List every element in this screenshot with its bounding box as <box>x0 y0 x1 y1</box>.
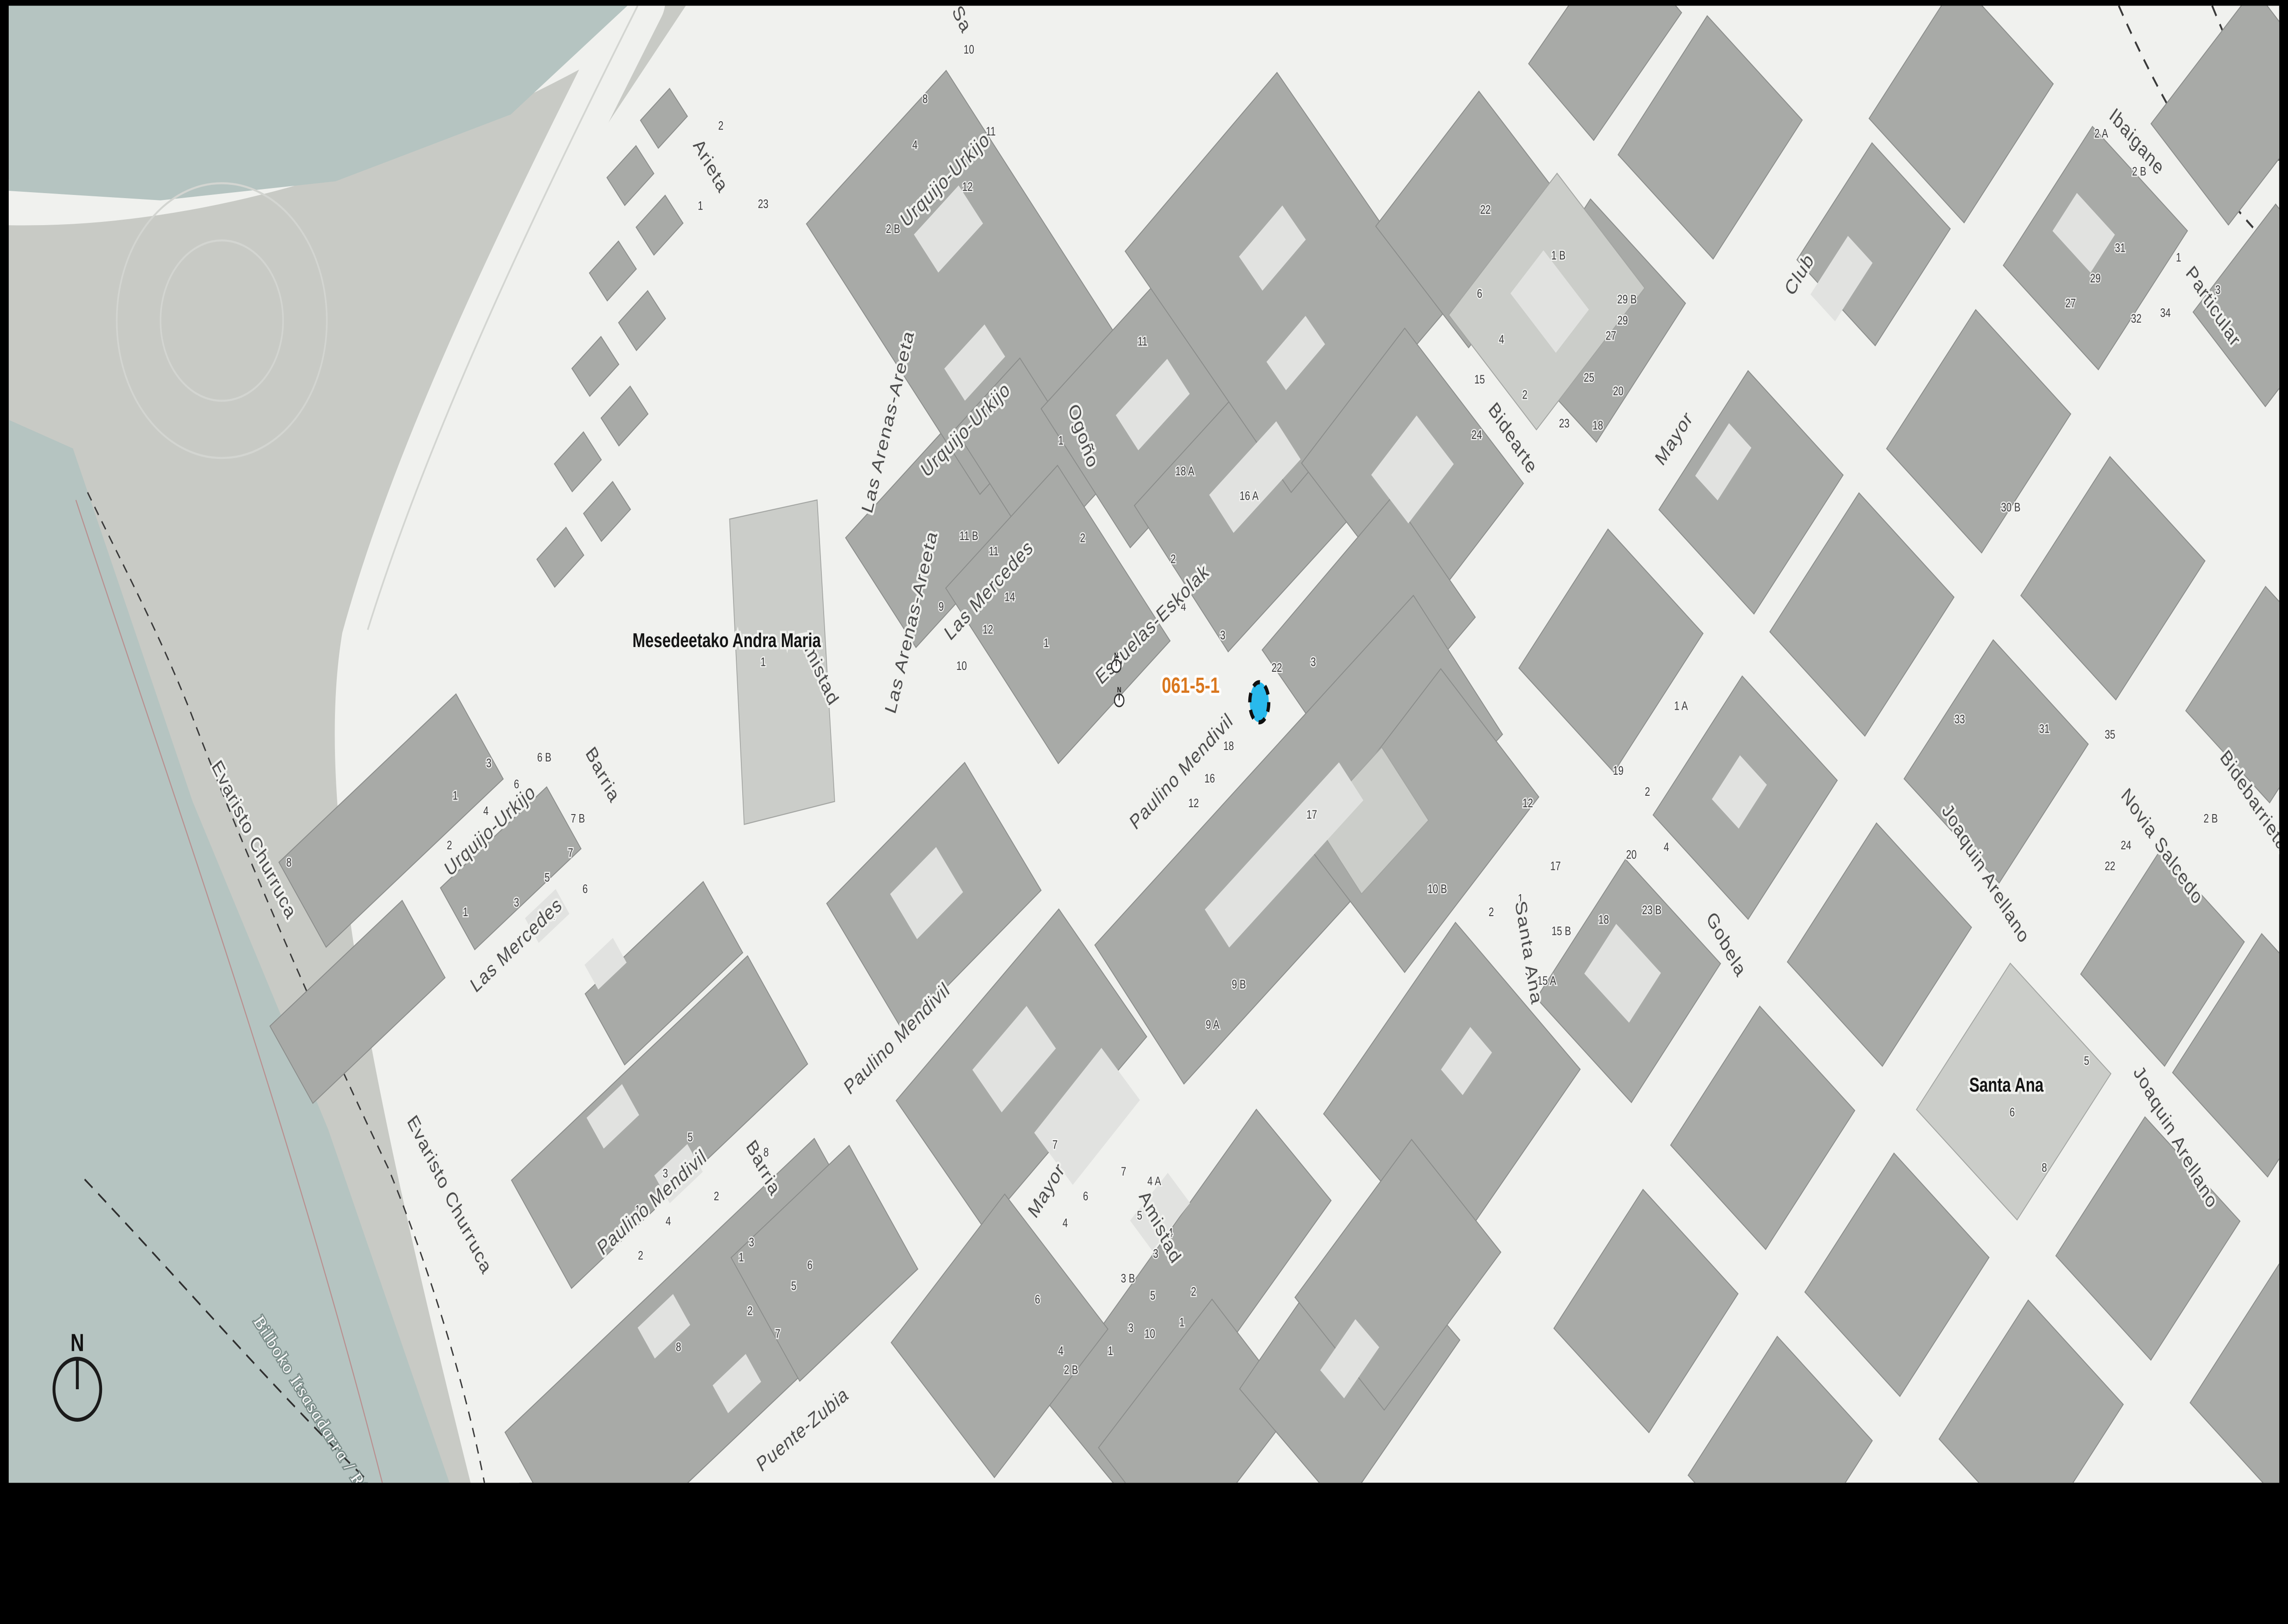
house-number: 7 B <box>571 812 585 825</box>
house-number: 1 A <box>1674 699 1688 713</box>
house-number: 2 <box>714 1190 719 1203</box>
house-number: 27 <box>2065 297 2076 310</box>
house-number: 7 <box>1052 1138 1058 1152</box>
house-number: 5 <box>791 1279 797 1293</box>
house-number: 23 <box>758 197 768 211</box>
house-number: 1 <box>739 1251 744 1264</box>
house-number: 3 <box>514 896 519 909</box>
house-number: 2 B <box>2132 165 2146 178</box>
house-number: 12 <box>982 623 993 637</box>
house-number: 25 <box>1584 371 1594 384</box>
house-number: 9 A <box>1206 1018 1220 1031</box>
house-number: 5 <box>545 871 550 885</box>
house-number: 5 <box>688 1130 693 1144</box>
house-number: 6 <box>1477 287 1483 301</box>
house-number: 3 B <box>1121 1272 1135 1285</box>
house-number: 16 A <box>1240 489 1259 503</box>
house-number: 6 <box>807 1258 813 1272</box>
house-number: 5 <box>2084 1054 2089 1068</box>
house-number: 1 <box>1058 434 1063 448</box>
house-number: 29 B <box>1617 292 1637 306</box>
house-number: 1 <box>698 199 703 213</box>
house-number: 20 <box>1626 848 1637 862</box>
house-number: 22 <box>1272 661 1282 674</box>
house-number: 4 <box>1499 333 1504 346</box>
house-number: 33 <box>1954 712 1965 726</box>
house-number: 18 A <box>1176 464 1195 478</box>
house-number: 6 B <box>537 750 551 764</box>
house-number: 10 <box>956 659 967 673</box>
house-number: 6 <box>583 882 588 896</box>
poi-label-mesedeetako-andra-maria: Mesedeetako Andra Maria <box>632 630 821 652</box>
house-number: 1 <box>1044 636 1049 650</box>
house-number: 16 <box>1204 772 1215 785</box>
house-number: 1 <box>463 905 468 919</box>
house-number: 9 <box>939 600 944 614</box>
house-number: 3 <box>1153 1247 1159 1261</box>
house-number: 3 <box>1128 1321 1134 1335</box>
house-number: 4 A <box>1147 1174 1161 1188</box>
house-number: 1 B <box>1551 249 1565 263</box>
house-number: 20 <box>1613 384 1624 398</box>
house-number: 8 <box>676 1340 681 1354</box>
house-number: 3 <box>1311 655 1316 669</box>
house-number: 12 <box>1522 796 1533 810</box>
house-number: 1 <box>761 655 766 669</box>
house-number: 1 <box>2176 251 2181 264</box>
house-number: 3 <box>1220 628 1225 642</box>
house-number: 34 <box>2160 306 2171 320</box>
house-number: 2 <box>718 119 723 133</box>
house-number: 2 <box>1171 552 1176 566</box>
house-number: 3 <box>486 756 491 770</box>
house-number: 11 B <box>960 529 978 543</box>
house-number: 18 <box>1223 739 1234 753</box>
house-number: 22 <box>2105 859 2115 873</box>
house-number: 6 <box>1083 1190 1089 1203</box>
selected-location-marker[interactable] <box>1250 682 1268 723</box>
house-number: 35 <box>2105 728 2115 741</box>
house-number: 1 <box>453 789 458 803</box>
house-number: 9 B <box>1232 978 1246 992</box>
house-number: 31 <box>2039 722 2050 736</box>
house-number: 2 <box>1522 388 1528 402</box>
house-number: 8 <box>2042 1161 2047 1175</box>
house-number: 2 B <box>1064 1363 1078 1377</box>
house-number: 2 <box>747 1304 753 1318</box>
house-number: 2 B <box>886 222 900 236</box>
house-number: 18 <box>1598 913 1609 927</box>
house-number: 7 <box>1121 1165 1127 1178</box>
house-number: 29 <box>1617 313 1628 327</box>
house-number: 4 <box>666 1214 671 1228</box>
house-number: 11 <box>989 545 999 558</box>
house-number: 2 <box>1645 785 1650 799</box>
house-number: 7 <box>775 1327 781 1341</box>
house-number: 29 <box>2090 272 2101 286</box>
house-number: 15 <box>1474 373 1485 387</box>
mini-north-n: N <box>1114 652 1118 660</box>
house-number: 10 B <box>1428 882 1447 896</box>
house-number: 18 <box>1592 419 1603 432</box>
house-number: 2 <box>1191 1285 1197 1299</box>
house-number: 5 <box>1150 1289 1155 1302</box>
house-number: 30 B <box>2001 501 2021 514</box>
house-number: 12 <box>1188 796 1199 810</box>
mini-north-n: N <box>1117 686 1121 695</box>
house-number: 10 <box>1144 1327 1155 1341</box>
house-number: 2 <box>447 838 452 852</box>
house-number: 23 <box>1559 417 1570 431</box>
north-arrow-label: N <box>70 1329 84 1357</box>
house-number: 4 <box>483 804 489 818</box>
house-number: 10 <box>964 43 974 56</box>
house-number: 8 <box>286 856 292 869</box>
house-number: 2 <box>1080 531 1085 545</box>
parcel-ref-label: 061-5-1 <box>1162 673 1220 698</box>
house-number: 7 <box>568 846 573 860</box>
house-number: 22 <box>1480 203 1491 216</box>
house-number: 15 B <box>1552 924 1571 938</box>
house-number: 2 A <box>2094 127 2109 140</box>
house-number: 6 <box>2010 1106 2015 1119</box>
map-canvas[interactable]: 3223181612172041141210911 B1110841112102… <box>0 0 2288 1624</box>
poi-label-santa-ana: Santa Ana <box>1969 1074 2044 1096</box>
house-number: 23 B <box>1642 903 1662 917</box>
house-number: 4 <box>912 138 918 152</box>
house-number: 27 <box>1606 329 1616 343</box>
house-number: 4 <box>1664 840 1669 854</box>
house-number: 11 <box>1138 335 1148 348</box>
house-number: 2 <box>1489 905 1494 919</box>
house-number: 32 <box>2131 312 2142 325</box>
house-number: 31 <box>2115 241 2126 255</box>
house-number: 4 <box>1063 1216 1068 1230</box>
house-number: 14 <box>1004 590 1015 604</box>
house-number: 17 <box>1306 808 1317 822</box>
house-number: 4 <box>1058 1344 1063 1358</box>
map-viewport[interactable]: 3223181612172041141210911 B1110841112102… <box>6 0 2288 1580</box>
house-number: 2 <box>638 1249 643 1263</box>
house-number: 19 <box>1613 764 1624 778</box>
house-number: 8 <box>923 92 928 106</box>
house-number: 3 <box>749 1236 754 1249</box>
screenshot-frame: 3223181612172041141210911 B1110841112102… <box>0 0 2288 1624</box>
house-number: 24 <box>1472 428 1482 442</box>
house-number: 24 <box>2121 838 2132 852</box>
house-number: 2 B <box>2203 812 2218 825</box>
house-number: 1 <box>1108 1344 1113 1358</box>
house-number: 12 <box>962 180 973 194</box>
house-number: 6 <box>1035 1293 1040 1306</box>
house-number: 17 <box>1550 859 1561 873</box>
house-number: 1 <box>1179 1316 1185 1329</box>
